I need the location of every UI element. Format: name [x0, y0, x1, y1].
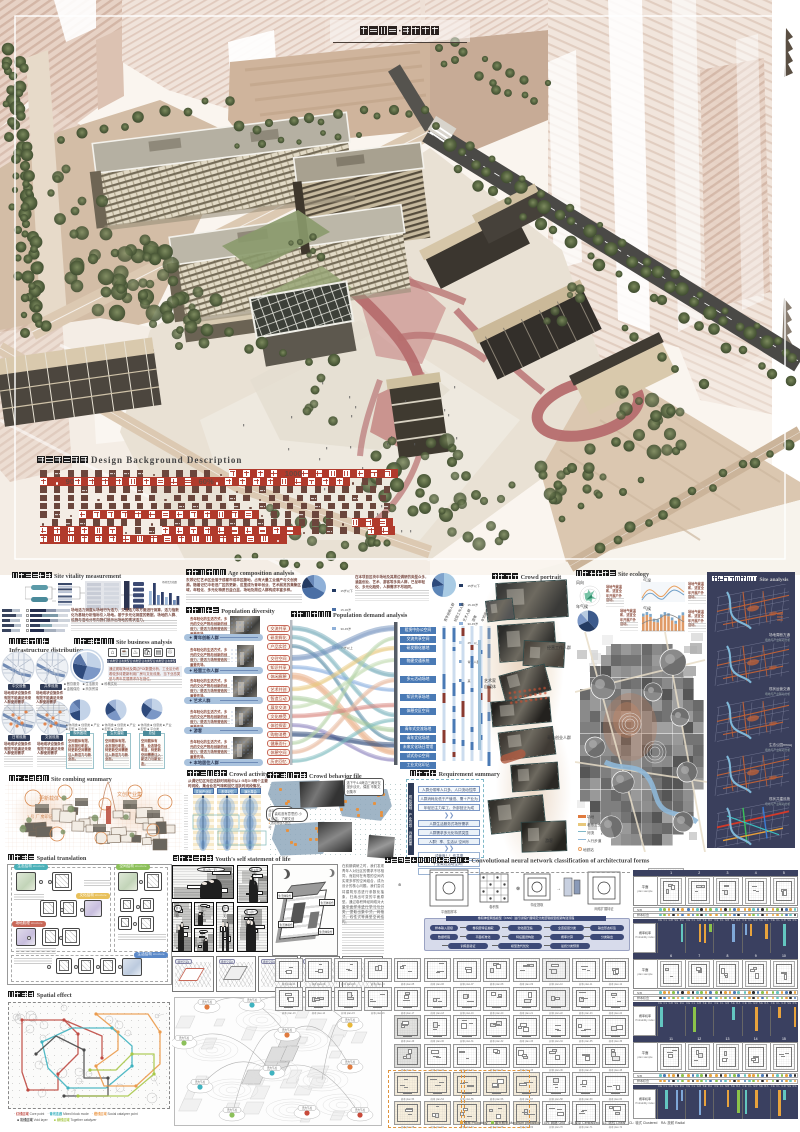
- svg-text:活力节点: 活力节点: [355, 1108, 366, 1112]
- svg-text:⊗: ⊗: [516, 886, 520, 892]
- svg-text:场地与产业联动分析: 场地与产业联动分析: [765, 802, 790, 806]
- svg-text:活力节点: 活力节点: [267, 1066, 278, 1070]
- svg-text:活力节点: 活力节点: [247, 998, 258, 1002]
- svg-text:活力节点: 活力节点: [282, 1028, 293, 1032]
- svg-text:场地活力指数: 场地活力指数: [162, 580, 178, 584]
- svg-text:艺术人群: 艺术人群: [461, 607, 472, 622]
- svg-text:网络扩展特征: 网络扩展特征: [594, 906, 614, 911]
- svg-text:活力节点: 活力节点: [195, 1080, 206, 1084]
- svg-text:场地周断方通: 场地周断方通: [769, 632, 790, 637]
- svg-text:⊛: ⊛: [398, 882, 401, 887]
- svg-text:卷积核: 卷积核: [489, 904, 499, 909]
- svg-text:生态公园площ: 生态公园площ: [769, 742, 792, 747]
- svg-text:文创产业集: 文创产业集: [117, 791, 142, 798]
- svg-text:活力节点: 活力节点: [302, 1106, 313, 1110]
- svg-text:→: →: [556, 886, 561, 892]
- svg-text:活力节点: 活力节点: [202, 1000, 213, 1004]
- svg-text:游客: 游客: [470, 614, 478, 623]
- svg-text:特征提取: 特征提取: [531, 902, 545, 907]
- svg-text:现状运营交通: 现状运营交通: [769, 686, 790, 691]
- svg-text:活力节点: 活力节点: [345, 1060, 356, 1064]
- svg-text:现状共建设施: 现状共建设施: [769, 796, 790, 801]
- svg-text:活力节点: 活力节点: [227, 1108, 238, 1112]
- svg-text:平面图样本: 平面图样本: [441, 909, 458, 914]
- svg-text:活力节点: 活力节点: [345, 1018, 356, 1022]
- svg-text:活力节点: 活力节点: [179, 1036, 190, 1040]
- svg-text:更新载体: 更新载体: [39, 795, 59, 802]
